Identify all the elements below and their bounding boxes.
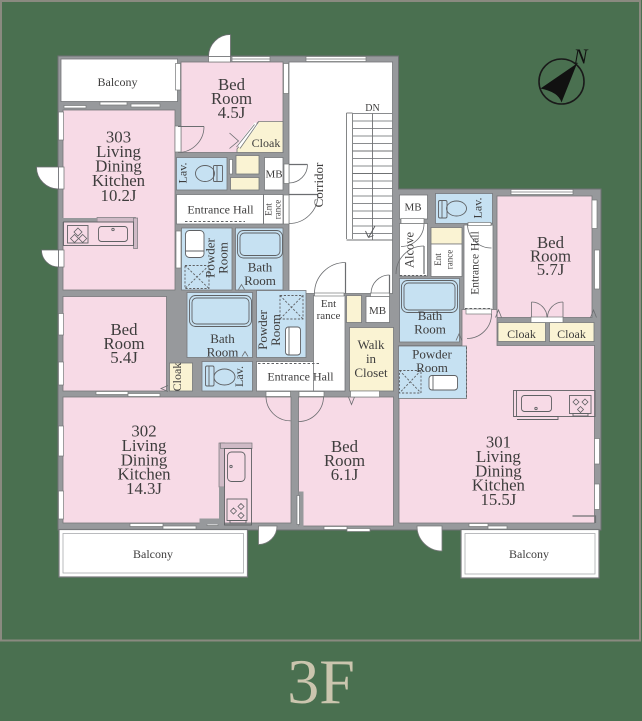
svg-text:BathRoom: BathRoom [207,331,239,360]
svg-text:DN: DN [365,103,379,114]
svg-text:Cloak: Cloak [507,327,536,341]
svg-text:rance: rance [273,200,283,219]
svg-text:Room: Room [268,314,283,346]
svg-text:Cloak: Cloak [557,327,586,341]
svg-text:Balcony: Balcony [509,547,549,561]
svg-text:Room: Room [216,242,231,274]
svg-text:BathRoom: BathRoom [244,260,276,289]
svg-text:3F: 3F [287,646,355,717]
svg-text:rance: rance [445,250,455,269]
svg-text:Lav.: Lav. [176,163,190,184]
svg-text:Lav.: Lav. [232,366,246,387]
svg-text:BathRoom: BathRoom [414,308,446,337]
svg-text:Entrance Hall: Entrance Hall [187,203,254,217]
svg-text:MB: MB [265,169,282,181]
svg-text:Ent: Ent [433,253,443,266]
svg-text:Cloak: Cloak [170,363,184,392]
svg-text:Balcony: Balcony [98,75,138,89]
svg-text:PowderRoom: PowderRoom [412,347,452,376]
svg-text:N: N [572,45,588,69]
svg-text:Entrance Hall: Entrance Hall [470,231,482,295]
svg-text:MB: MB [369,305,386,317]
svg-text:Corridor: Corridor [311,162,326,207]
svg-text:Alcove: Alcove [403,232,417,269]
svg-text:Entrance Hall: Entrance Hall [267,370,334,384]
svg-text:Balcony: Balcony [133,547,173,561]
svg-text:Lav.: Lav. [471,198,485,219]
svg-text:Cloak: Cloak [252,136,281,150]
svg-text:MB: MB [404,202,421,214]
